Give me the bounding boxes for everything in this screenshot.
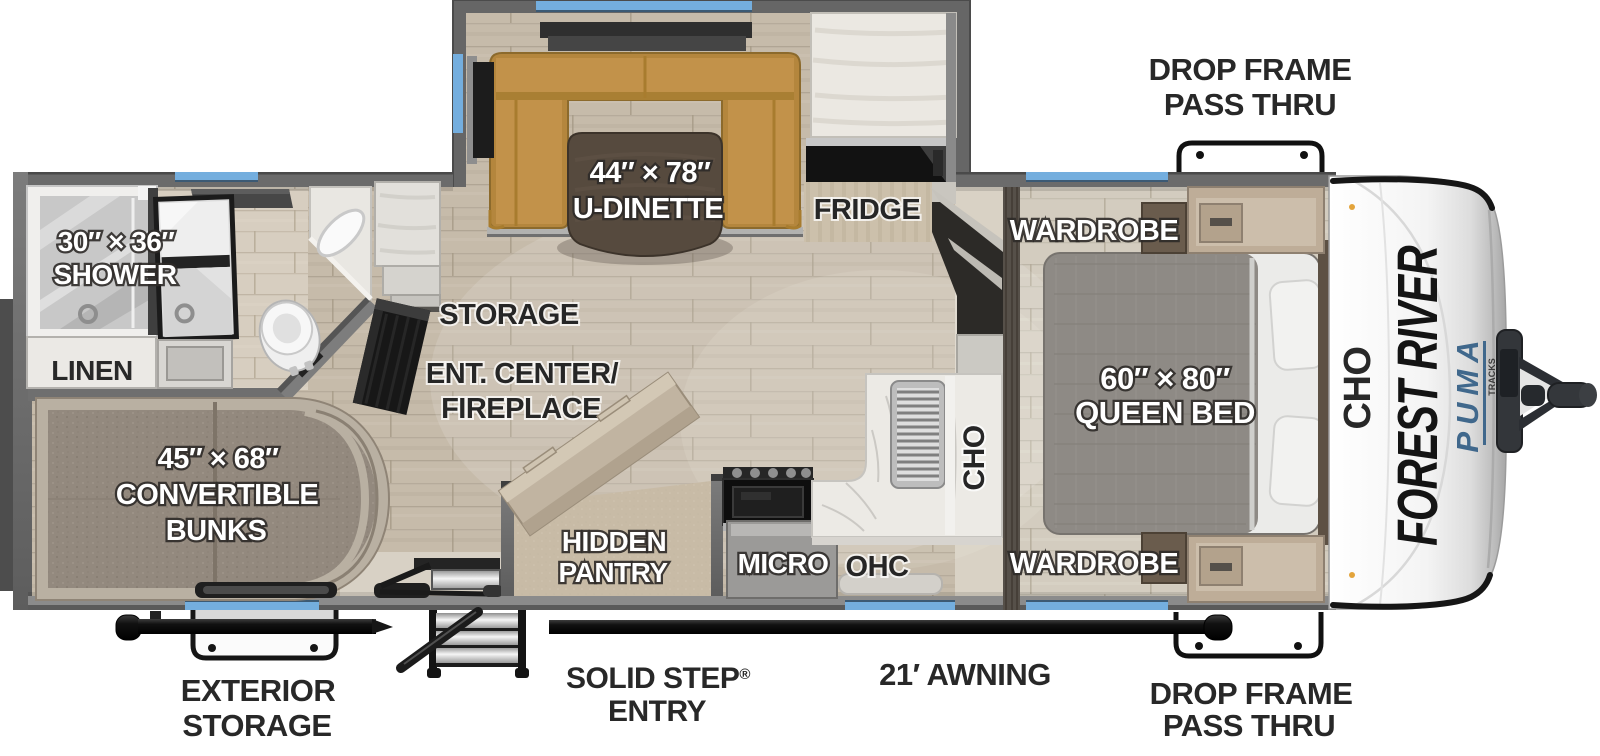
svg-text:STORAGE: STORAGE (182, 708, 331, 743)
svg-text:FOREST RIVER: FOREST RIVER (1386, 245, 1450, 546)
svg-text:FRIDGE: FRIDGE (814, 194, 921, 226)
svg-text:60″ × 80″: 60″ × 80″ (1100, 361, 1230, 396)
svg-text:FIREPLACE: FIREPLACE (441, 393, 601, 425)
svg-text:TRACKS: TRACKS (1487, 358, 1497, 396)
svg-text:LINEN: LINEN (51, 355, 133, 386)
svg-text:OHC: OHC (846, 551, 910, 583)
svg-text:CHO: CHO (1337, 347, 1379, 430)
svg-text:45″ × 68″: 45″ × 68″ (158, 443, 279, 475)
svg-text:30″ × 36″: 30″ × 36″ (58, 226, 175, 257)
svg-text:PASS THRU: PASS THRU (1164, 87, 1336, 122)
svg-text:WARDROBE: WARDROBE (1010, 548, 1179, 580)
svg-text:QUEEN BED: QUEEN BED (1075, 395, 1255, 430)
svg-text:WARDROBE: WARDROBE (1010, 215, 1179, 247)
svg-text:DROP FRAME: DROP FRAME (1150, 676, 1353, 711)
svg-text:DROP FRAME: DROP FRAME (1149, 52, 1352, 87)
svg-text:STORAGE: STORAGE (439, 299, 579, 331)
svg-text:PUMA: PUMA (1450, 333, 1485, 452)
svg-text:PASS THRU: PASS THRU (1163, 708, 1335, 743)
svg-text:BUNKS: BUNKS (166, 515, 267, 547)
svg-text:ENTRY: ENTRY (608, 695, 707, 728)
svg-text:44″ × 78″: 44″ × 78″ (590, 157, 711, 189)
svg-text:CHO: CHO (958, 425, 991, 490)
svg-text:MICRO: MICRO (738, 548, 829, 579)
svg-text:CONVERTIBLE: CONVERTIBLE (116, 479, 319, 511)
svg-text:SOLID STEP®: SOLID STEP® (566, 662, 750, 695)
svg-text:21′ AWNING: 21′ AWNING (879, 657, 1051, 692)
svg-text:EXTERIOR: EXTERIOR (181, 673, 336, 708)
svg-text:PANTRY: PANTRY (559, 557, 669, 588)
svg-text:HIDDEN: HIDDEN (562, 526, 666, 557)
svg-text:U-DINETTE: U-DINETTE (573, 193, 723, 225)
svg-text:SHOWER: SHOWER (54, 259, 177, 290)
svg-text:ENT. CENTER/: ENT. CENTER/ (426, 358, 619, 390)
